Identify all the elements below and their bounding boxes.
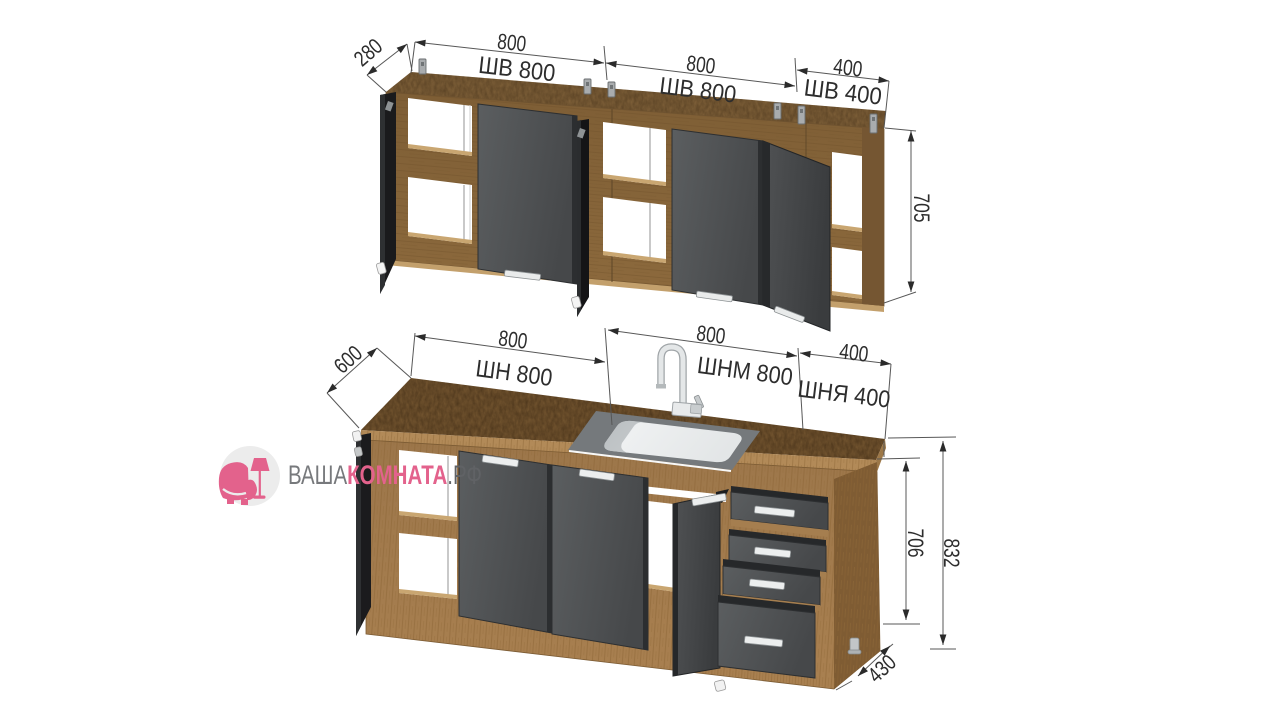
- svg-text:832: 832: [939, 539, 964, 568]
- svg-text:400: 400: [838, 338, 870, 366]
- svg-text:705: 705: [909, 194, 934, 223]
- svg-text:ВАШАКОМНАТА.РФ: ВАШАКОМНАТА.РФ: [288, 460, 482, 490]
- svg-text:706: 706: [903, 529, 928, 558]
- svg-text:800: 800: [496, 29, 527, 57]
- svg-text:800: 800: [497, 325, 529, 354]
- svg-text:800: 800: [695, 320, 727, 349]
- svg-text:800: 800: [685, 50, 717, 78]
